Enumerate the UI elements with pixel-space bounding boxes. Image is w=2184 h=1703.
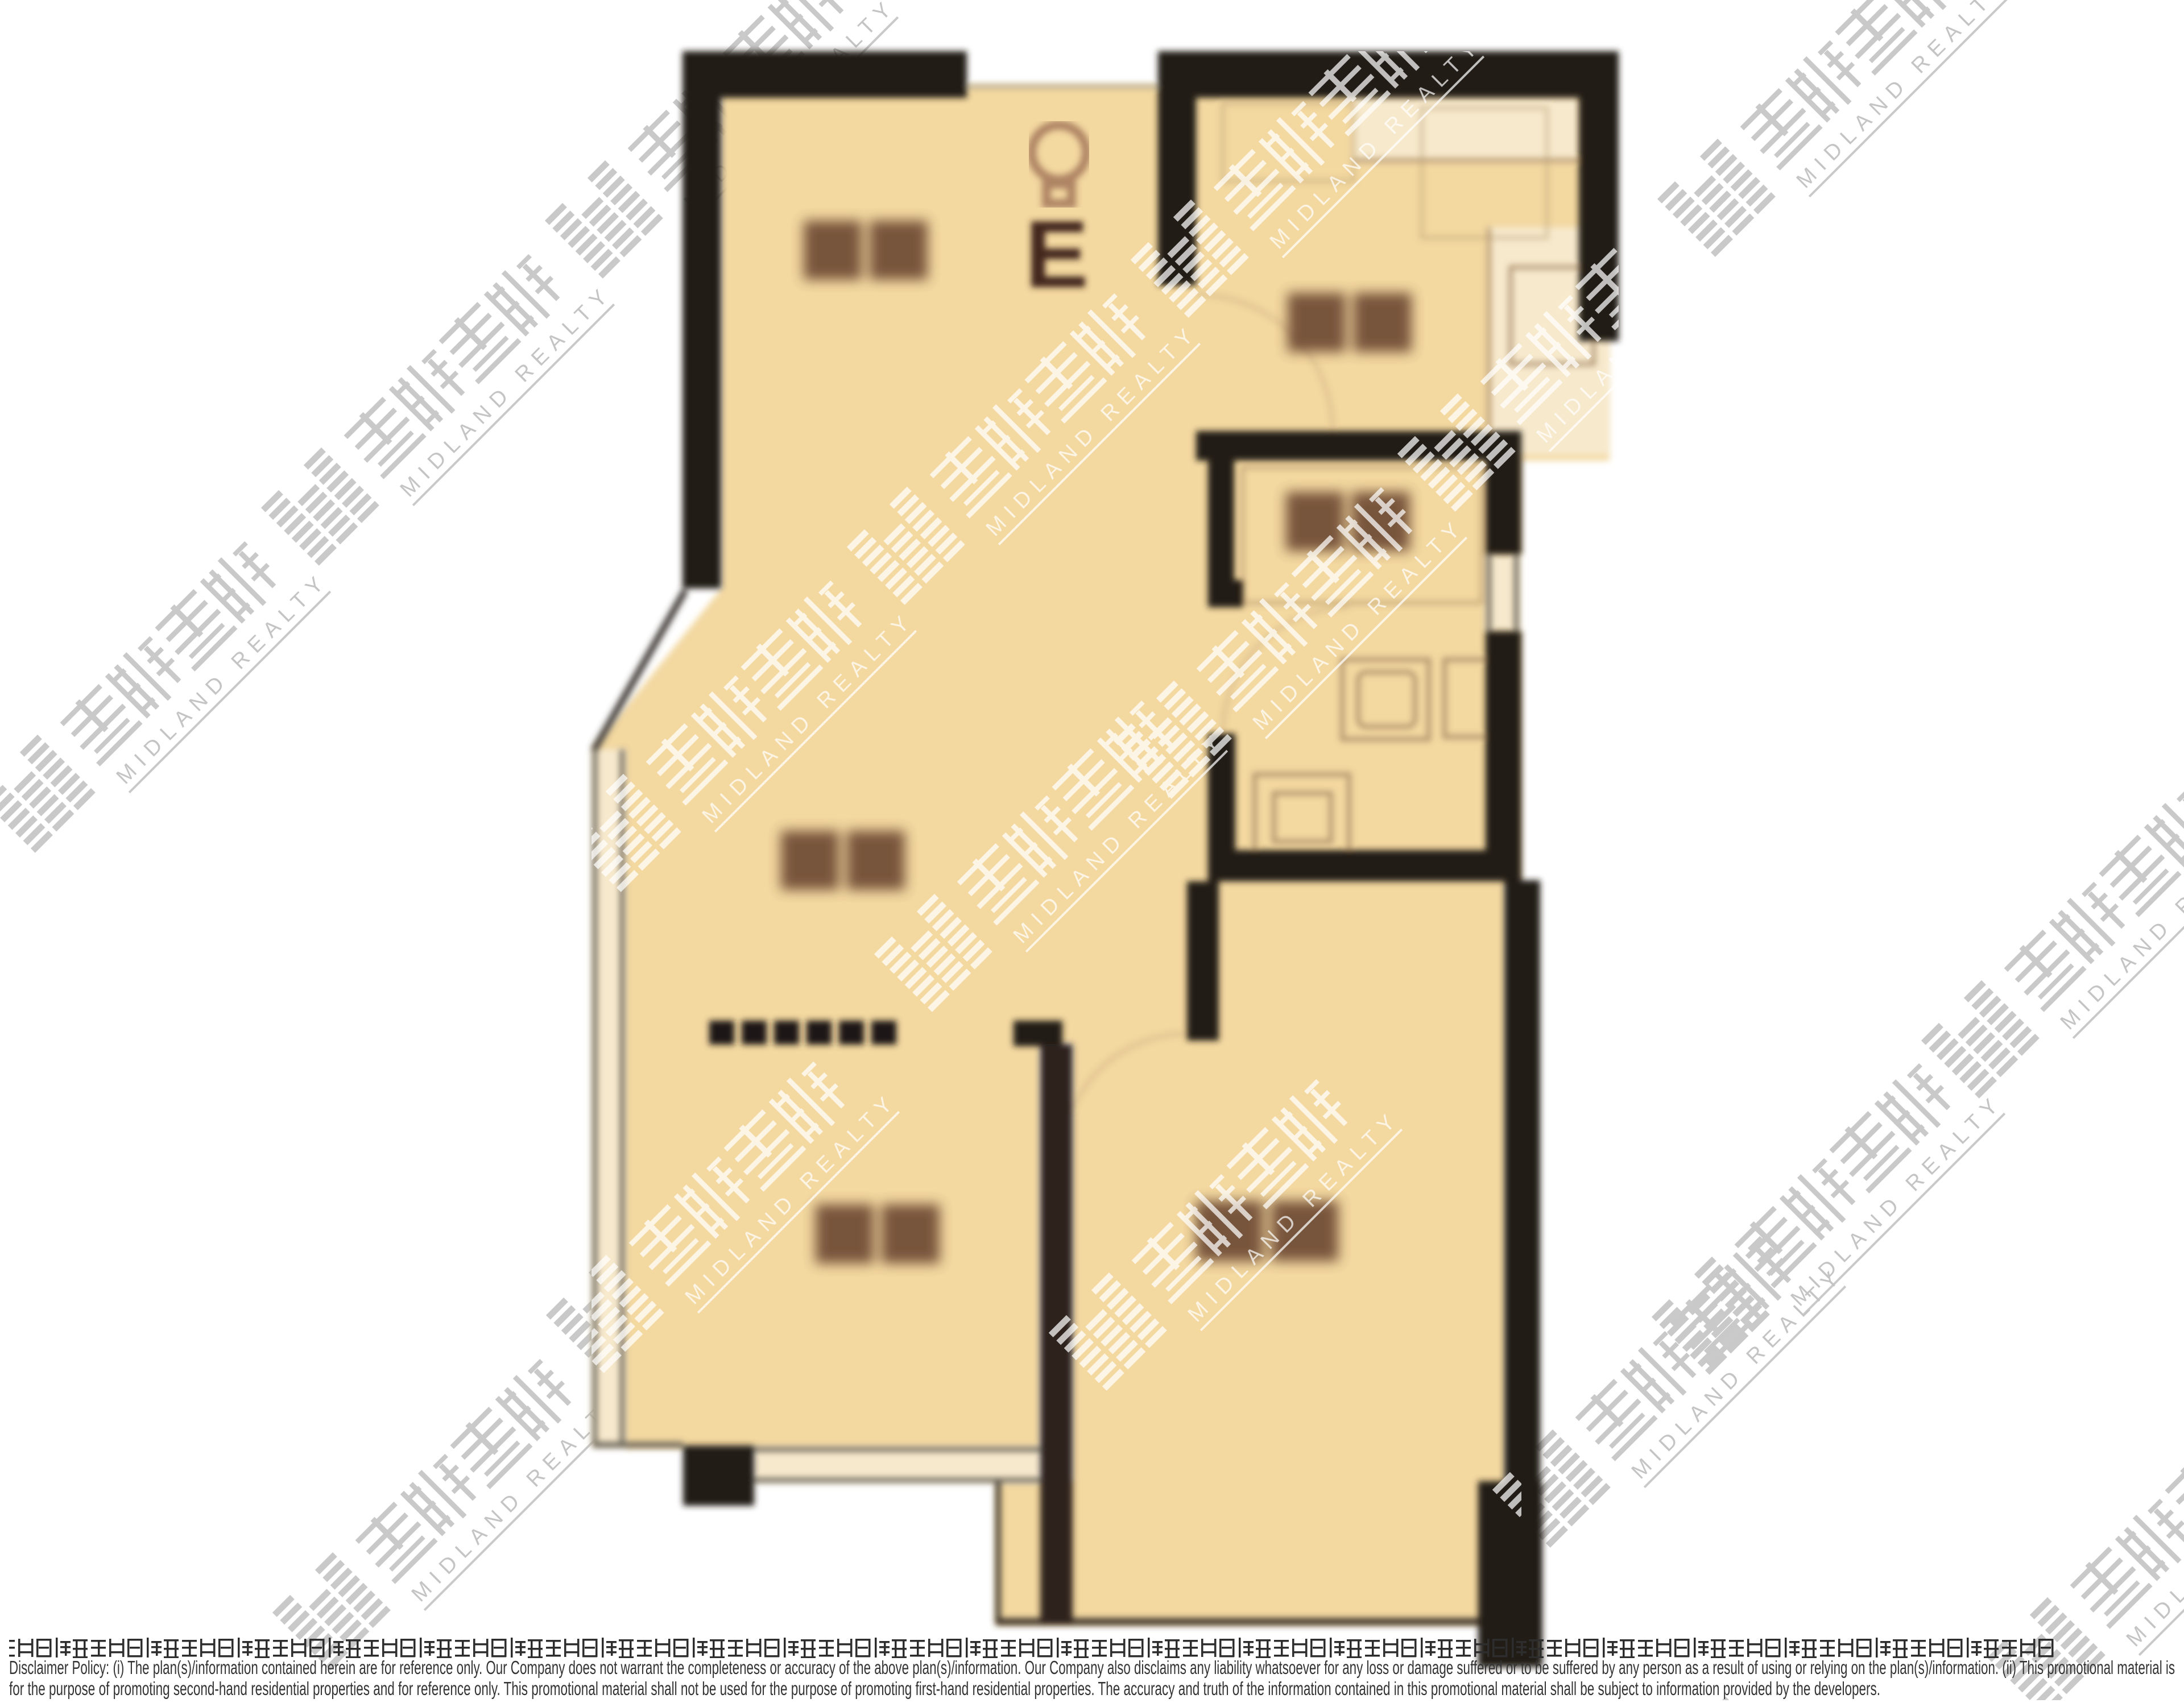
svg-text:Disclaimer Policy: (i) The pla: Disclaimer Policy: (i) The plan(s)/infor…	[9, 1657, 2175, 1678]
svg-text:for the purpose of promoting s: for the purpose of promoting second-hand…	[9, 1678, 1880, 1699]
